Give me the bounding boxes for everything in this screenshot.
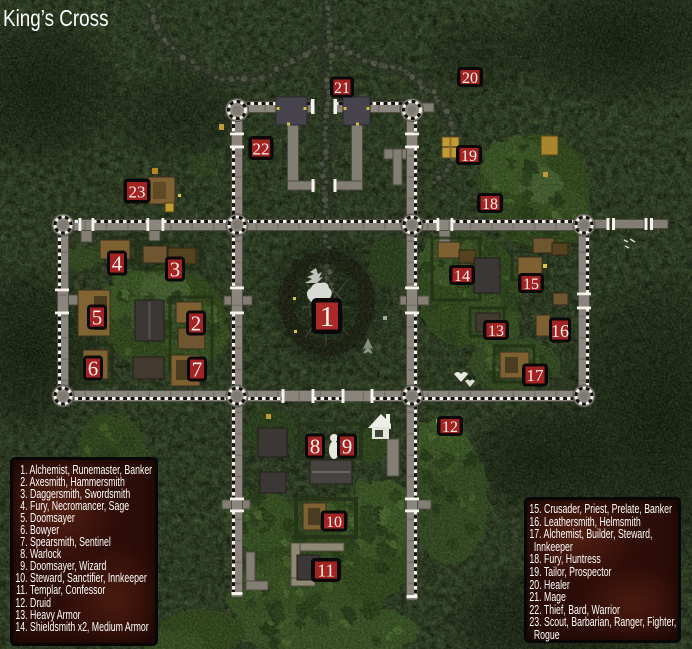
svg-text:13: 13 bbox=[488, 323, 504, 340]
svg-text:21: 21 bbox=[334, 80, 350, 97]
svg-text:19: 19 bbox=[461, 148, 477, 165]
svg-text:20: 20 bbox=[462, 70, 478, 87]
svg-text:6: 6 bbox=[88, 357, 99, 381]
svg-text:14: 14 bbox=[454, 268, 470, 285]
svg-text:18: 18 bbox=[482, 196, 498, 213]
svg-text:12: 12 bbox=[442, 419, 458, 436]
svg-text:10: 10 bbox=[326, 514, 342, 531]
svg-text:23: 23 bbox=[129, 183, 146, 202]
svg-text:15: 15 bbox=[523, 276, 539, 293]
svg-text:8: 8 bbox=[310, 435, 321, 459]
svg-text:9: 9 bbox=[342, 435, 353, 459]
svg-text:11: 11 bbox=[317, 561, 334, 581]
svg-text:4: 4 bbox=[112, 252, 123, 276]
svg-text:22: 22 bbox=[253, 140, 270, 159]
svg-text:5: 5 bbox=[92, 306, 103, 330]
svg-text:2: 2 bbox=[191, 312, 202, 336]
svg-text:3: 3 bbox=[170, 258, 181, 282]
svg-text:16: 16 bbox=[551, 321, 569, 341]
svg-text:7: 7 bbox=[192, 358, 203, 382]
svg-text:1: 1 bbox=[320, 301, 335, 333]
svg-text:17: 17 bbox=[527, 366, 545, 385]
